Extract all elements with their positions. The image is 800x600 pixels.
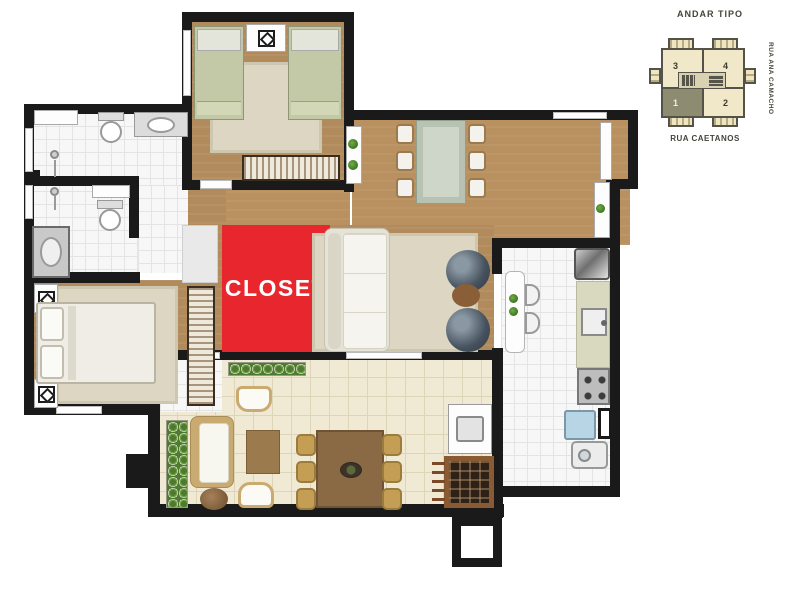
wall bbox=[126, 454, 152, 488]
balcony bbox=[744, 68, 756, 84]
wall bbox=[232, 180, 354, 190]
washer-door bbox=[578, 449, 591, 462]
grill-skewer bbox=[432, 471, 445, 474]
shower-head bbox=[50, 150, 59, 159]
refrigerator bbox=[574, 248, 610, 280]
unit-number: 4 bbox=[723, 61, 735, 72]
dining-chair bbox=[468, 178, 486, 198]
planter bbox=[166, 420, 188, 508]
terrace-armchair bbox=[236, 386, 272, 412]
sofa-seat bbox=[343, 233, 387, 349]
grill-skewer bbox=[432, 462, 445, 465]
terrace-table bbox=[316, 430, 384, 508]
pillow bbox=[197, 29, 241, 51]
terrace-chair bbox=[296, 434, 316, 456]
unit-number: 1 bbox=[673, 98, 685, 109]
elevator-core bbox=[678, 72, 726, 89]
planter bbox=[228, 362, 306, 376]
grill-skewer bbox=[432, 498, 445, 501]
terrace-chair bbox=[382, 461, 402, 483]
barbecue-grill bbox=[444, 456, 494, 508]
door bbox=[200, 180, 232, 189]
nightstand bbox=[246, 24, 286, 52]
wall bbox=[628, 110, 638, 189]
bed-fold bbox=[291, 101, 339, 115]
elevator-cell bbox=[709, 75, 723, 86]
terrace-sofa bbox=[190, 416, 234, 488]
street-label-bottom: RUA CAETANOS bbox=[650, 134, 760, 146]
decor-ornament bbox=[38, 386, 55, 403]
centerpiece bbox=[340, 462, 362, 478]
laundry-tank bbox=[564, 410, 596, 440]
kitchen-sink bbox=[581, 308, 607, 336]
key-plan-title: ANDAR TIPO bbox=[650, 9, 770, 21]
wall bbox=[182, 180, 200, 190]
sideboard bbox=[346, 126, 362, 184]
elevator-cell bbox=[681, 75, 695, 86]
plant bbox=[509, 307, 518, 316]
shower-shelf bbox=[92, 185, 130, 198]
terrace-chair bbox=[382, 434, 402, 456]
wall bbox=[492, 486, 620, 497]
pillow bbox=[291, 29, 339, 51]
decor-ornament bbox=[258, 30, 275, 47]
ottoman bbox=[200, 488, 228, 510]
terrace-chair bbox=[382, 488, 402, 510]
vanity-sink bbox=[134, 112, 188, 137]
shower-stall bbox=[32, 226, 70, 278]
shower-head bbox=[50, 187, 59, 196]
console-ledge bbox=[600, 122, 612, 180]
toilet-tank bbox=[98, 112, 124, 121]
wardrobe bbox=[187, 286, 215, 406]
terrace-sink bbox=[448, 404, 492, 454]
plant bbox=[596, 204, 605, 213]
toilet-bowl bbox=[100, 121, 122, 143]
wall bbox=[24, 272, 34, 415]
unit-number: 3 bbox=[673, 61, 685, 72]
toilet bbox=[98, 112, 124, 144]
shower-base bbox=[40, 237, 62, 267]
faucet bbox=[601, 320, 607, 326]
shower-hose bbox=[54, 160, 56, 177]
plant bbox=[348, 139, 358, 149]
sofa bbox=[324, 228, 390, 352]
stove bbox=[577, 368, 610, 405]
dining-table bbox=[416, 120, 466, 204]
dining-chair bbox=[468, 151, 486, 171]
plant bbox=[348, 160, 358, 170]
toilet-bowl bbox=[99, 209, 121, 231]
double-bed bbox=[36, 302, 156, 384]
wall bbox=[610, 179, 620, 497]
wall bbox=[129, 176, 139, 238]
shower-hose bbox=[54, 196, 56, 210]
terrace-chair bbox=[296, 488, 316, 510]
door-panel bbox=[182, 225, 218, 283]
floor-bath-vestibule bbox=[138, 185, 188, 273]
wall bbox=[492, 238, 616, 248]
key-plan: ANDAR TIPO 3 4 1 2 RUA ANA CAMACHO RUA C… bbox=[640, 4, 800, 154]
shower-shelf bbox=[34, 110, 78, 125]
window bbox=[25, 185, 33, 219]
sliding-door bbox=[346, 352, 422, 359]
terrace-armchair bbox=[238, 482, 274, 508]
service-shaft bbox=[452, 517, 502, 567]
dining-chair bbox=[468, 124, 486, 144]
single-bed bbox=[288, 26, 342, 120]
grill-skewer bbox=[432, 489, 445, 492]
side-table bbox=[452, 284, 480, 307]
window bbox=[25, 128, 33, 172]
washing-machine bbox=[571, 441, 608, 469]
single-bed bbox=[194, 26, 244, 120]
dining-chair bbox=[396, 124, 414, 144]
floor-plan: CLOSET bbox=[0, 0, 800, 600]
coffee-table bbox=[246, 430, 280, 474]
unit-number: 2 bbox=[723, 98, 735, 109]
entry-door bbox=[553, 112, 607, 119]
armchair bbox=[446, 308, 490, 352]
wall bbox=[492, 238, 502, 274]
table-glass bbox=[423, 127, 459, 197]
terrace-chair bbox=[296, 461, 316, 483]
pillow bbox=[40, 307, 64, 341]
pillow bbox=[40, 345, 64, 379]
sofa-back bbox=[328, 233, 341, 349]
grill-skewer bbox=[432, 480, 445, 483]
toilet-tank bbox=[97, 200, 123, 209]
toilet bbox=[97, 200, 123, 232]
sofa-cushion bbox=[199, 423, 229, 483]
wardrobe bbox=[242, 155, 340, 181]
window bbox=[183, 30, 191, 96]
sink-basin bbox=[456, 416, 484, 442]
duvet-fold bbox=[68, 306, 76, 380]
door-leaf bbox=[598, 408, 612, 439]
balcony bbox=[649, 68, 661, 84]
dining-chair bbox=[396, 178, 414, 198]
bed-fold bbox=[197, 101, 241, 115]
street-label-right: RUA ANA CAMACHO bbox=[760, 42, 774, 134]
wall bbox=[182, 12, 354, 22]
sink-basin bbox=[147, 117, 175, 133]
dining-chair bbox=[396, 151, 414, 171]
plant bbox=[509, 294, 518, 303]
window bbox=[56, 406, 102, 414]
